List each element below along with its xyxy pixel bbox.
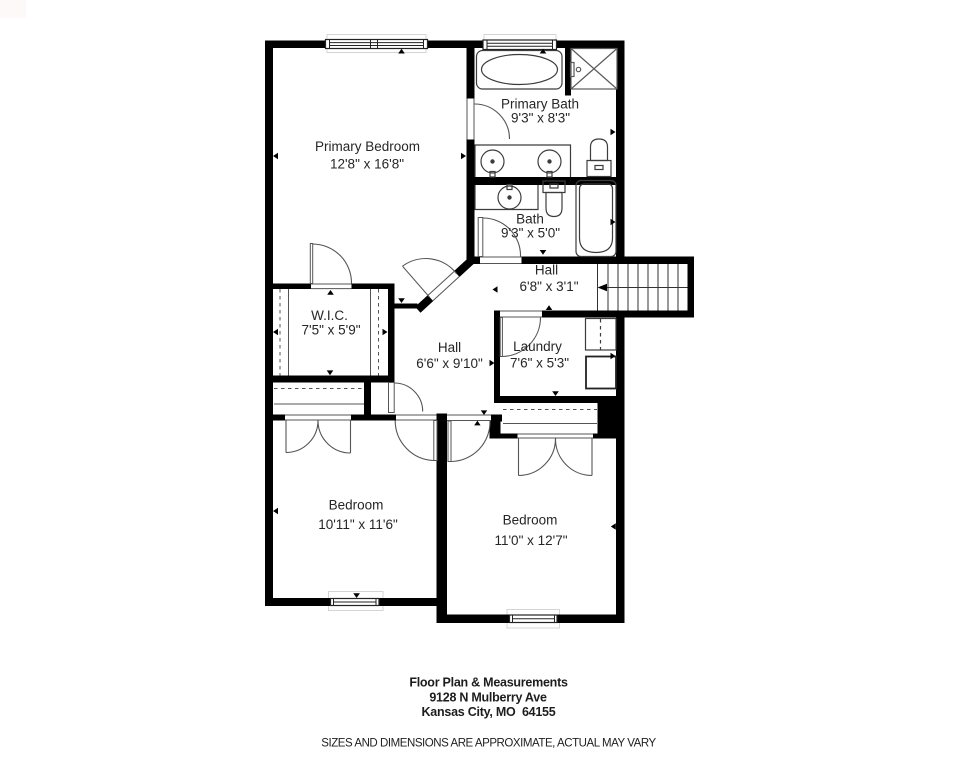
svg-text:Primary Bath: Primary Bath bbox=[501, 97, 579, 112]
svg-text:SIZES AND DIMENSIONS ARE APPRO: SIZES AND DIMENSIONS ARE APPROXIMATE, AC… bbox=[321, 738, 656, 750]
svg-text:12'8" x 16'8": 12'8" x 16'8" bbox=[330, 157, 404, 172]
svg-text:Primary Bedroom: Primary Bedroom bbox=[315, 139, 420, 154]
svg-text:Bedroom: Bedroom bbox=[329, 498, 384, 513]
svg-text:Floor Plan & Measurements: Floor Plan & Measurements bbox=[409, 676, 568, 690]
svg-text:6'6" x 9'10": 6'6" x 9'10" bbox=[416, 356, 483, 371]
svg-text:9'3" x 5'0": 9'3" x 5'0" bbox=[501, 226, 560, 241]
svg-text:Bath: Bath bbox=[516, 212, 544, 227]
svg-text:Hall: Hall bbox=[535, 263, 558, 278]
svg-text:7'5" x 5'9": 7'5" x 5'9" bbox=[301, 323, 360, 338]
svg-text:Bedroom: Bedroom bbox=[503, 513, 558, 528]
svg-text:9128 N Mulberry Ave: 9128 N Mulberry Ave bbox=[429, 691, 547, 705]
svg-text:10'11" x 11'6": 10'11" x 11'6" bbox=[318, 517, 398, 532]
svg-text:6'8" x 3'1": 6'8" x 3'1" bbox=[519, 279, 578, 294]
svg-text:W.I.C.: W.I.C. bbox=[311, 308, 348, 323]
svg-text:Kansas City, MO 64155: Kansas City, MO 64155 bbox=[422, 705, 556, 719]
svg-text:Laundry: Laundry bbox=[513, 339, 562, 354]
svg-text:11'0" x 12'7": 11'0" x 12'7" bbox=[494, 533, 567, 548]
svg-text:7'6" x 5'3": 7'6" x 5'3" bbox=[510, 356, 569, 371]
svg-text:Hall: Hall bbox=[438, 340, 461, 355]
svg-text:9'3" x 8'3": 9'3" x 8'3" bbox=[511, 111, 570, 126]
